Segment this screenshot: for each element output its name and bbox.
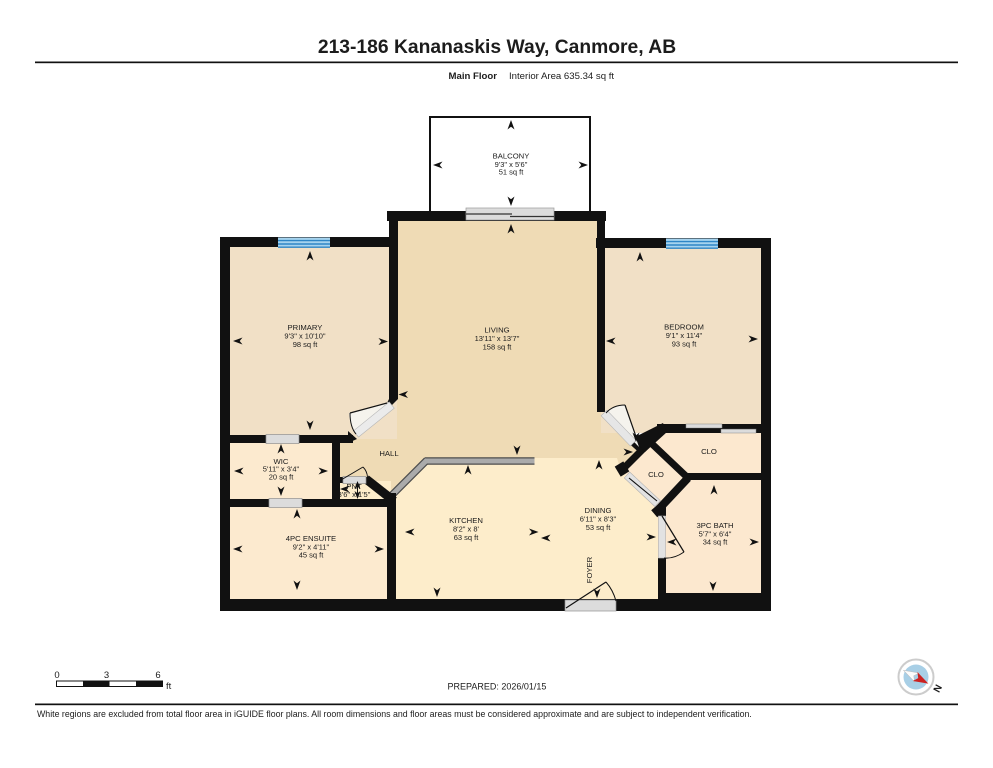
- svg-text:51 sq ft: 51 sq ft: [499, 167, 525, 176]
- svg-text:PREPARED: 2026/01/15: PREPARED: 2026/01/15: [448, 682, 547, 692]
- svg-text:34 sq ft: 34 sq ft: [703, 538, 729, 547]
- svg-text:45 sq ft: 45 sq ft: [299, 551, 325, 560]
- svg-text:Main Floor: Main Floor: [449, 71, 498, 82]
- svg-text:White regions are excluded fro: White regions are excluded from total fl…: [37, 709, 752, 719]
- svg-text:20 sq ft: 20 sq ft: [269, 473, 295, 482]
- svg-text:ft: ft: [166, 681, 172, 692]
- svg-text:6: 6: [155, 670, 160, 681]
- svg-text:CLO: CLO: [701, 447, 717, 456]
- svg-text:158 sq ft: 158 sq ft: [483, 342, 513, 351]
- svg-text:CLO: CLO: [648, 470, 664, 479]
- svg-text:3: 3: [104, 670, 109, 681]
- svg-text:213-186 Kananaskis Way, Canmor: 213-186 Kananaskis Way, Canmore, AB: [318, 37, 676, 58]
- svg-text:63 sq ft: 63 sq ft: [454, 533, 480, 542]
- svg-text:93 sq ft: 93 sq ft: [672, 339, 698, 348]
- svg-text:Interior Area 635.34 sq ft: Interior Area 635.34 sq ft: [509, 71, 614, 82]
- svg-text:98 sq ft: 98 sq ft: [293, 340, 319, 349]
- svg-text:HALL: HALL: [379, 449, 399, 458]
- svg-text:FOYER: FOYER: [585, 556, 594, 583]
- svg-text:53 sq ft: 53 sq ft: [586, 523, 612, 532]
- svg-text:0: 0: [54, 670, 59, 681]
